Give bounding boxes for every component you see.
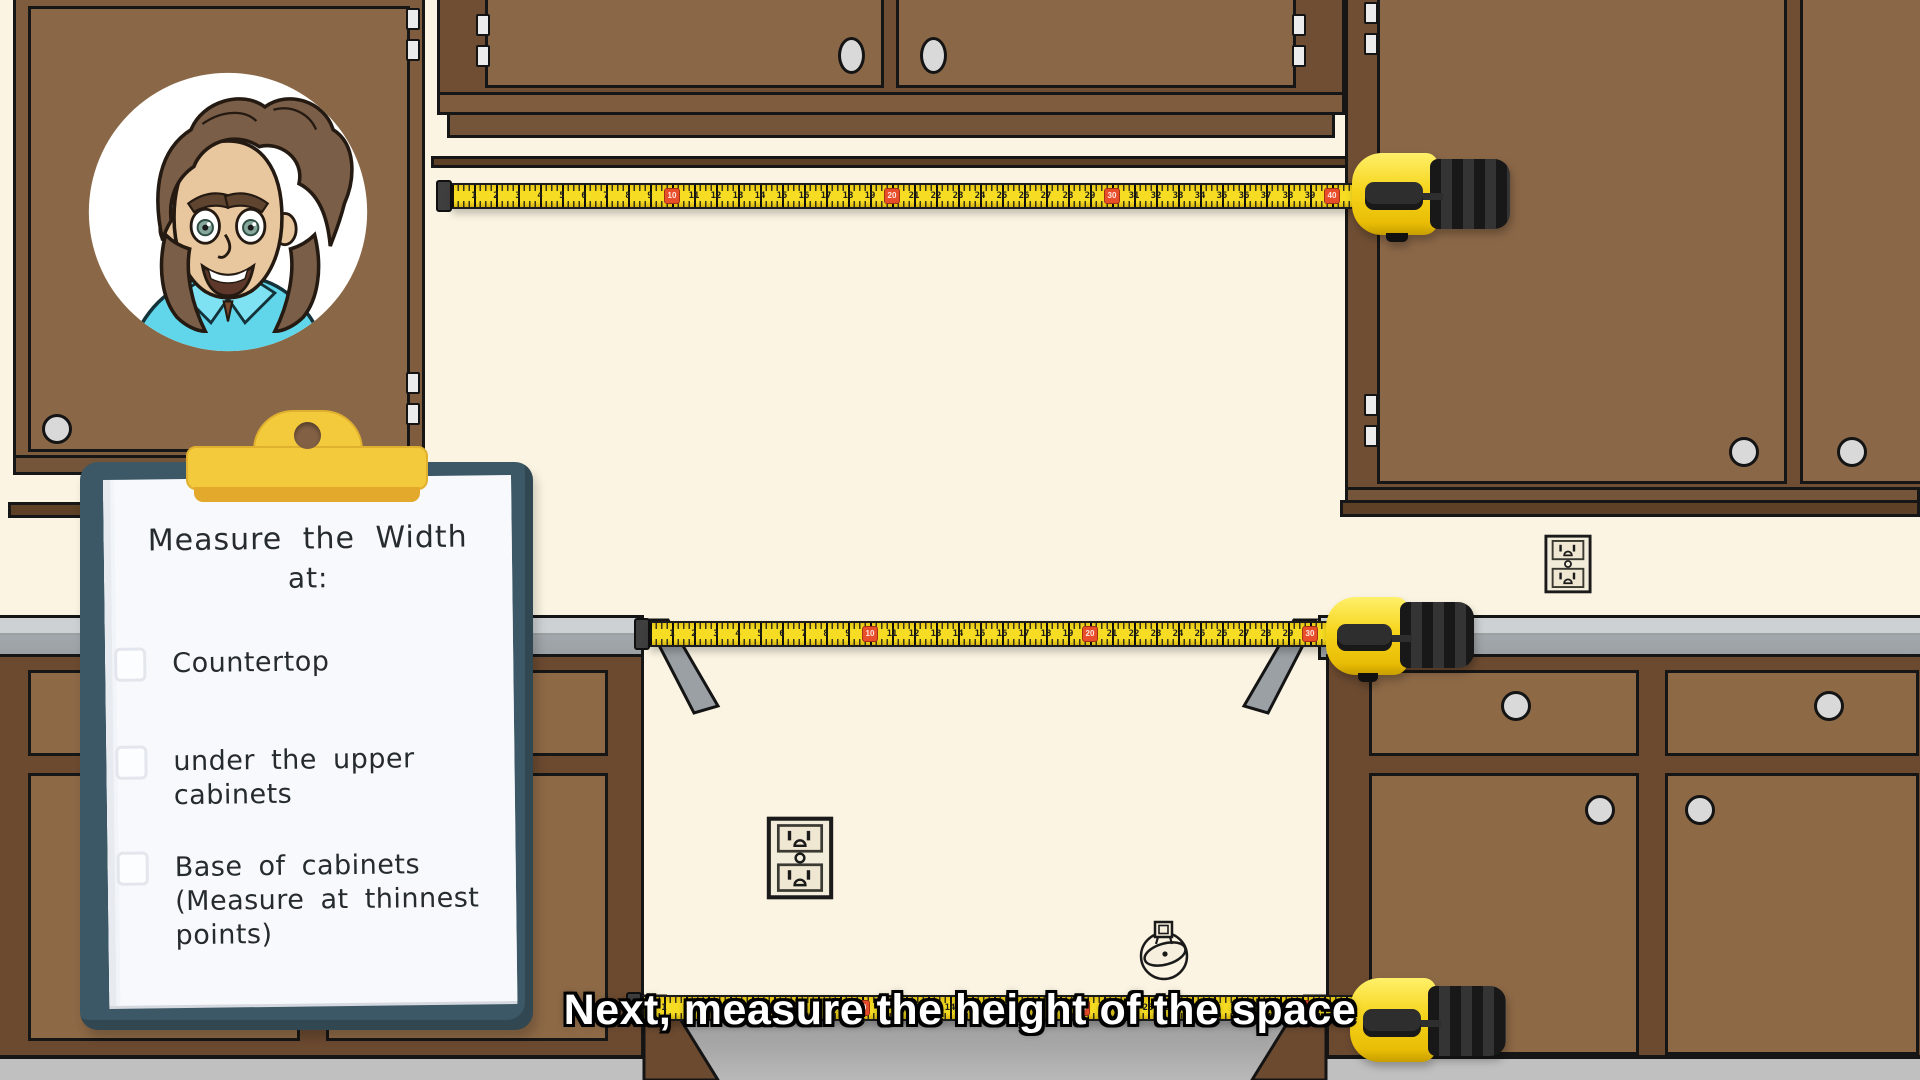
tape-measure-case [1350,978,1514,1072]
tape-number: 27 [1239,629,1250,639]
tape-number: 32 [1151,191,1162,201]
drawer-knob [1501,691,1531,721]
cabinet-molding [1340,500,1920,517]
checklist-paper: Measure the Width at: Countertop under t… [103,475,517,1006]
checklist-item: Base of cabinets (Measure at thinnest po… [117,847,496,954]
power-outlet [1544,528,1592,600]
tape-number: 2 [691,629,696,639]
checklist-item-label: Countertop [172,643,492,681]
power-outlet [766,816,834,900]
door-hinge [1364,2,1378,55]
tape-number: 14 [755,191,766,201]
door-knob [920,37,947,74]
tape-number: 28 [1261,629,1272,639]
tape-number: 9 [845,629,850,639]
tape-number: 19 [865,191,876,201]
tape-red-marker: 30 [1104,188,1120,204]
clipboard-clip-bar [186,446,428,490]
tape-number: 16 [997,629,1008,639]
tape-red-marker: 20 [884,188,900,204]
tape-number: 1 [669,629,674,639]
tape-number: 25 [997,191,1008,201]
tape-number: 26 [1217,629,1228,639]
tape-number: 8 [823,629,828,639]
tape-number: 21 [909,191,920,201]
tape-number: 16 [799,191,810,201]
clipboard: Measure the Width at: Countertop under t… [80,462,533,1030]
tape-number: 4 [735,629,740,639]
tape-hook [634,618,650,650]
tape-hook [436,180,452,212]
door-knob [838,37,865,74]
tape-number: 25 [1195,629,1206,639]
cabinet-molding [431,156,1353,168]
checkbox[interactable] [115,745,147,779]
door-knob [42,414,72,444]
tape-number: 5 [559,191,564,201]
tape-red-marker: 20 [1082,626,1098,642]
tape-number: 15 [777,191,788,201]
tape-number: 12 [909,629,920,639]
tape-red-marker: 10 [862,626,878,642]
tape-number: 22 [1129,629,1140,639]
upper-cabinet-right-door-right [1800,0,1920,484]
cabinet-molding [447,112,1335,138]
tape-measure-case [1326,597,1482,685]
tape-number: 33 [1173,191,1184,201]
tape-number: 18 [843,191,854,201]
tape-number: 35 [1217,191,1228,201]
tape-red-marker: 30 [1302,626,1318,642]
door-hinge [1364,394,1378,447]
tape-number: 9 [647,191,652,201]
tape-number: 6 [581,191,586,201]
tape-number: 14 [953,629,964,639]
tape-number: 6 [779,629,784,639]
tape-number: 13 [931,629,942,639]
door-knob [1837,437,1867,467]
tape-number: 13 [733,191,744,201]
tape-number: 11 [887,629,898,639]
tape-red-marker: 40 [1324,188,1340,204]
door-knob [1685,795,1715,825]
checklist-item-label: under the upper cabinets [173,741,494,813]
tape-band: 1234567891011121314151617181920212223242… [650,621,1328,647]
tape-number: 18 [1041,629,1052,639]
upper-cabinet-center-door-right [896,0,1296,88]
tape-number: 36 [1239,191,1250,201]
tape-band: 1234567891011121314151617181920212223242… [452,183,1352,209]
tape-number: 3 [713,629,718,639]
tape-number: 29 [1283,629,1294,639]
clipboard-clip-hole [294,422,321,449]
tape-number: 27 [1041,191,1052,201]
tape-number: 17 [1019,629,1030,639]
tape-number: 38 [1283,191,1294,201]
tape-number: 12 [711,191,722,201]
door-knob [1585,795,1615,825]
kitchen-scene: 1234567891011121314151617181920212223242… [0,0,1920,1080]
door-knob [1729,437,1759,467]
tape-number: 29 [1085,191,1096,201]
tape-number: 4 [537,191,542,201]
drawer-knob [1814,691,1844,721]
base-drawer [1665,670,1919,756]
upper-cabinet-center-door-left [485,0,884,88]
tape-number: 23 [1151,629,1162,639]
tape-measure-case [1352,153,1516,245]
clipboard-clip-shadow [194,487,420,502]
checkbox[interactable] [114,647,146,681]
tape-number: 11 [689,191,700,201]
tape-number: 26 [1019,191,1030,201]
tape-red-marker: 10 [664,188,680,204]
tape-number: 5 [757,629,762,639]
tape-number: 24 [1173,629,1184,639]
tape-number: 39 [1305,191,1316,201]
checklist-item: Countertop [114,643,492,682]
tape-number: 3 [515,191,520,201]
door-hinge [1292,14,1306,67]
tape-number: 2 [493,191,498,201]
tape-number: 1 [471,191,476,201]
tape-number: 23 [953,191,964,201]
tape-number: 8 [625,191,630,201]
checkbox[interactable] [117,851,149,885]
tape-number: 17 [821,191,832,201]
subtitle-caption: Next, measure the height of the space [564,986,1357,1035]
tape-number: 22 [931,191,942,201]
tape-number: 37 [1261,191,1272,201]
tape-number: 7 [603,191,608,201]
checklist-item-label: Base of cabinets (Measure at thinnest po… [175,847,496,953]
tape-number: 21 [1107,629,1118,639]
checklist-title-suffix: at: [104,559,512,597]
tape-measure-doodle-icon [1132,918,1196,984]
door-hinge [406,372,420,425]
tape-number: 7 [801,629,806,639]
tape-number: 19 [1063,629,1074,639]
checklist-item: under the upper cabinets [115,741,494,814]
tape-number: 24 [975,191,986,201]
door-hinge [406,8,420,61]
door-hinge [476,14,490,67]
presenter-avatar [86,70,370,354]
tape-number: 34 [1195,191,1206,201]
tape-number: 28 [1063,191,1074,201]
tape-number: 31 [1129,191,1140,201]
checklist-title: Measure the Width [104,519,512,559]
tape-number: 15 [975,629,986,639]
